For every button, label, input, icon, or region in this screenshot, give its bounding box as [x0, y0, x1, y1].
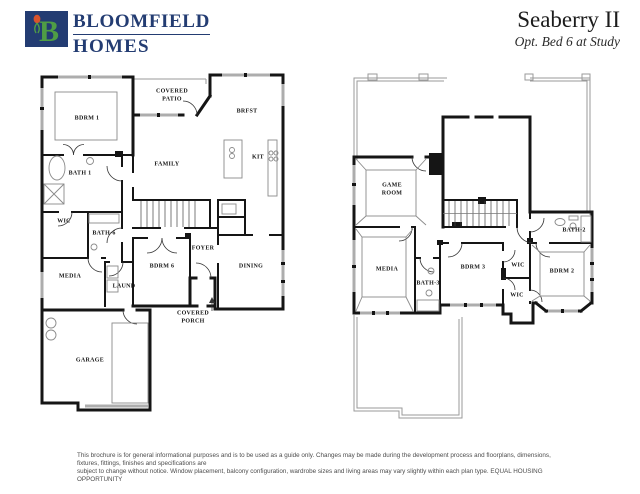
- room-label-garage: GARAGE: [76, 357, 104, 365]
- room-label-brfst: BRFST: [237, 108, 258, 116]
- room-label-covered-patio: COVERED PATIO: [156, 89, 188, 104]
- room-label-bath3: BATH-3: [416, 280, 439, 288]
- floorplan-drawing: [0, 0, 640, 494]
- room-label-bdrm1: BDRM 1: [75, 115, 100, 123]
- room-label-bdrm2: BDRM 2: [550, 268, 575, 276]
- second-floor-plan: [352, 74, 594, 418]
- room-label-foyer: FOYER: [192, 245, 215, 253]
- room-label-bath2: BATH-2: [562, 227, 585, 235]
- room-label-wic-lower: WIC: [510, 292, 524, 300]
- room-label-bdrm3: BDRM 3: [461, 264, 486, 272]
- roof-notches: [368, 74, 590, 80]
- room-label-bdrm6: BDRM 6: [150, 263, 175, 271]
- brochure-page: B BLOOMFIELD HOMES Seaberry II Opt. Bed …: [0, 0, 640, 494]
- room-label-media1: MEDIA: [59, 273, 81, 281]
- room-label-dining: DINING: [239, 263, 263, 271]
- room-label-bath6: BATH-6: [92, 230, 115, 238]
- room-label-covered-porch: COVERED PORCH: [177, 311, 209, 326]
- room-label-kit: KIT: [252, 154, 264, 162]
- room-label-wic-upper: WIC: [511, 262, 525, 270]
- room-label-game-room: GAME ROOM: [382, 183, 403, 198]
- window-mullions: [40, 73, 285, 283]
- room-label-wic: WIC: [57, 218, 71, 226]
- room-label-media2: MEDIA: [376, 266, 398, 274]
- room-label-family: FAMILY: [154, 161, 179, 169]
- room-label-laund: LAUND: [113, 283, 136, 291]
- stairs-first-floor: [141, 201, 195, 227]
- room-label-bath1: BATH 1: [69, 170, 92, 178]
